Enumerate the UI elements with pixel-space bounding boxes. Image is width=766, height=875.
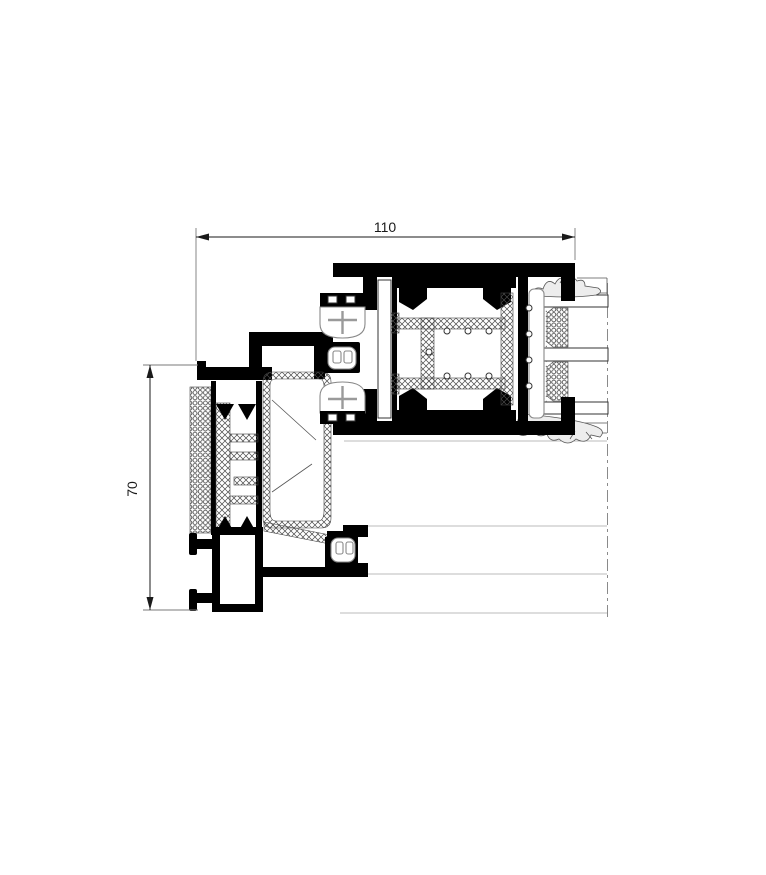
thermal-break-finger xyxy=(234,477,258,485)
profile-nub xyxy=(465,328,471,334)
thermal-break-hatch xyxy=(397,378,505,389)
thermal-break-hatch xyxy=(501,293,513,405)
gasket-clip-slot xyxy=(328,414,337,421)
gasket-clip xyxy=(320,293,365,307)
sash-wall xyxy=(211,381,216,535)
gasket-bump xyxy=(526,357,532,363)
frame-leg xyxy=(561,397,575,421)
thermal-break-finger xyxy=(230,496,258,504)
gasket-clip-slot xyxy=(346,296,355,303)
spacer-bar xyxy=(547,308,568,347)
profile-nub xyxy=(444,328,450,334)
glazing-wall xyxy=(518,277,528,421)
bottom-box-cavity xyxy=(220,535,255,604)
sash-wall xyxy=(249,332,262,380)
profile-section-drawing: 110 70 xyxy=(0,0,766,875)
gasket-bump xyxy=(526,305,532,311)
dimension-label-width: 110 xyxy=(374,219,397,235)
anchor-stem xyxy=(196,539,212,549)
gasket-clip-slot xyxy=(328,296,337,303)
spacer-bar xyxy=(547,362,568,401)
profile-nub xyxy=(465,373,471,379)
anchor-cap xyxy=(189,533,197,555)
insulation-strip xyxy=(190,387,211,533)
canvas-background xyxy=(0,0,766,875)
gasket-clip xyxy=(320,411,365,424)
frame-leg xyxy=(561,277,575,301)
profile-nub xyxy=(444,373,450,379)
anchor-cap xyxy=(189,589,197,611)
gasket-slot xyxy=(344,351,352,363)
frame-outer-top-bar xyxy=(333,263,575,277)
gasket-slot xyxy=(336,542,343,554)
frame-inner-wall xyxy=(392,277,397,421)
gasket-slot xyxy=(333,351,341,363)
thermal-break-finger xyxy=(230,452,258,460)
anchor-stem xyxy=(196,593,212,603)
profile-nub xyxy=(486,373,492,379)
frame-inner-top-bar xyxy=(392,277,516,288)
screw-channel xyxy=(378,280,391,418)
frame-outer-bottom-bar xyxy=(333,421,575,435)
profile-nub xyxy=(486,328,492,334)
gasket-slot xyxy=(346,542,353,554)
gasket-bump xyxy=(526,383,532,389)
frame-inner-bottom-bar xyxy=(392,410,516,421)
dimension-label-height: 70 xyxy=(124,481,140,497)
frame-leg xyxy=(363,277,377,310)
thermal-break-hatch xyxy=(397,318,505,329)
thermal-break-finger xyxy=(230,434,258,442)
gasket-clip-slot xyxy=(346,414,355,421)
thermal-break-hatch xyxy=(216,403,230,533)
profile-nub xyxy=(426,349,432,355)
gasket-bump xyxy=(526,331,532,337)
